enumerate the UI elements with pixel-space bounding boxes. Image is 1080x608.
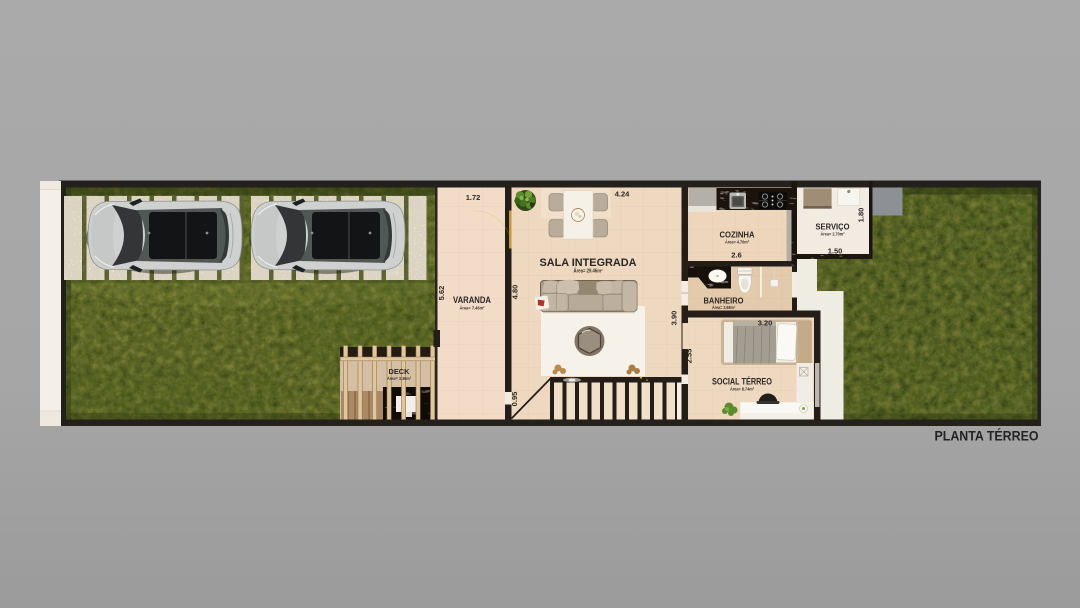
svg-text:3.90: 3.90	[670, 311, 679, 326]
svg-text:DECK: DECK	[389, 367, 411, 376]
svg-text:5.62: 5.62	[437, 286, 446, 301]
svg-text:1.72: 1.72	[466, 193, 481, 202]
svg-text:VARANDA: VARANDA	[453, 295, 491, 305]
svg-text:PLANTA TÉRREO: PLANTA TÉRREO	[935, 429, 1039, 444]
svg-text:Área= 29.46m²: Área= 29.46m²	[574, 268, 603, 275]
svg-text:1.50: 1.50	[828, 247, 843, 256]
svg-text:3.20: 3.20	[758, 319, 773, 328]
svg-text:4.24: 4.24	[615, 190, 630, 199]
svg-text:SALA INTEGRADA: SALA INTEGRADA	[540, 257, 637, 269]
svg-text:Área= 4.70m²: Área= 4.70m²	[725, 240, 749, 245]
svg-text:2.6: 2.6	[731, 251, 741, 260]
svg-text:SERVIÇO: SERVIÇO	[816, 222, 850, 232]
svg-text:4.80: 4.80	[511, 285, 520, 300]
svg-text:Área= 2.98m²: Área= 2.98m²	[712, 305, 736, 310]
svg-text:Área= 7.46m²: Área= 7.46m²	[460, 305, 485, 311]
svg-text:SOCIAL TÉRREO: SOCIAL TÉRREO	[712, 377, 772, 387]
svg-text:1.80: 1.80	[857, 208, 866, 223]
svg-text:Área= 2.70m²: Área= 2.70m²	[821, 232, 845, 237]
svg-text:Área= 8.74m²: Área= 8.74m²	[730, 387, 754, 392]
svg-text:2.55: 2.55	[685, 349, 694, 364]
svg-text:Área= 3.36m²: Área= 3.36m²	[387, 376, 411, 381]
svg-text:COZINHA: COZINHA	[720, 230, 755, 240]
svg-text:0.95: 0.95	[510, 392, 519, 407]
